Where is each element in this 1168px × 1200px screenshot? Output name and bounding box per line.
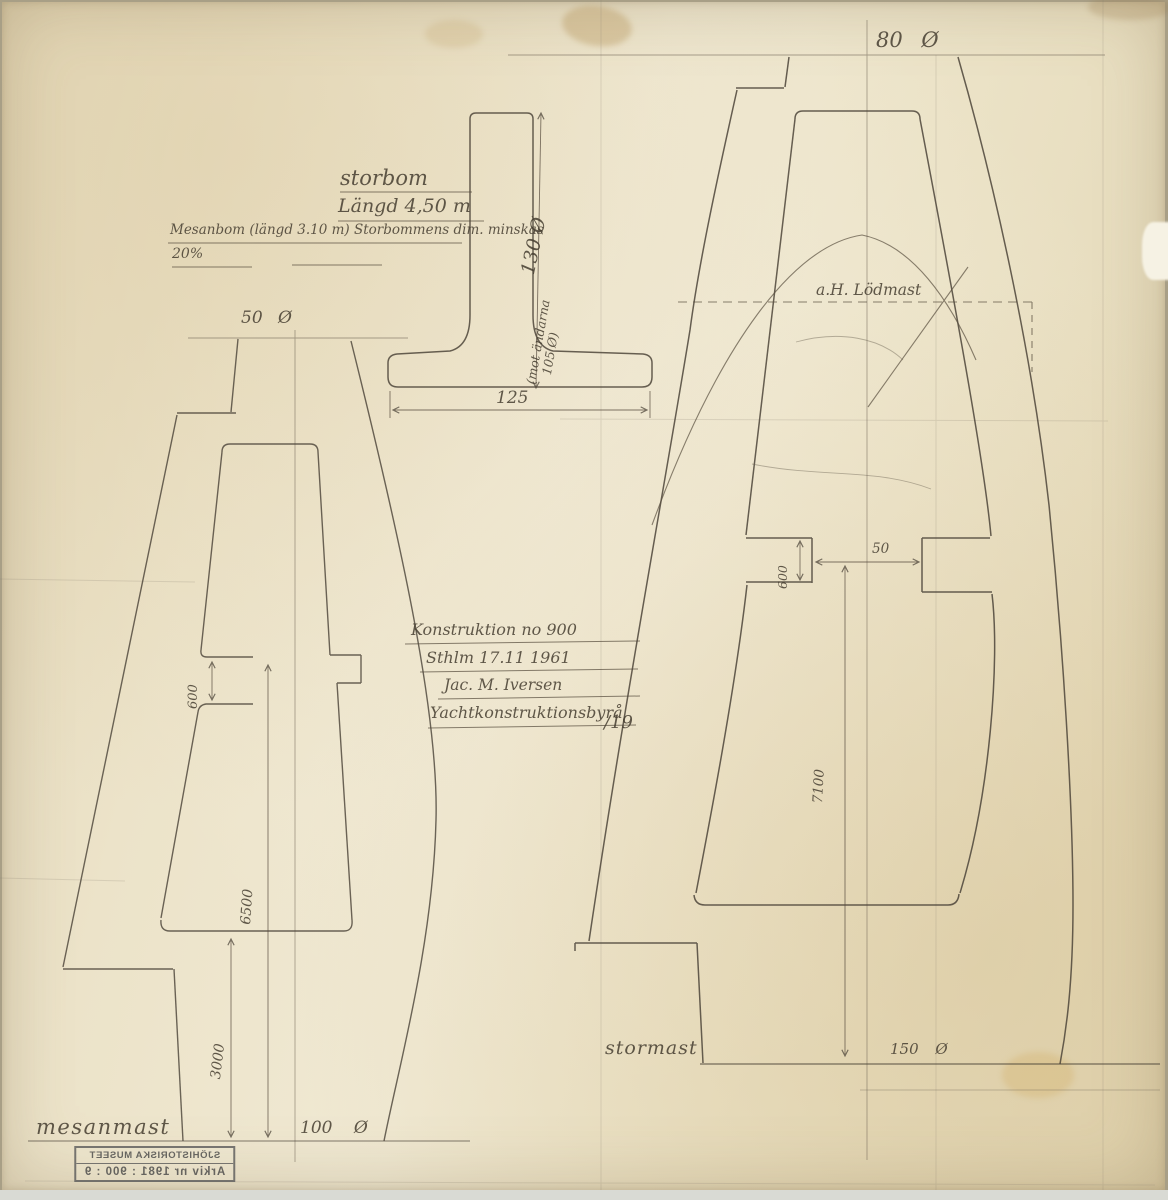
mesan-upper-length-dim: 6500 <box>238 888 256 925</box>
mesan-base-diameter: 100 Ø <box>300 1118 368 1138</box>
info-line1: Konstruktion no 900 <box>411 620 577 639</box>
stormast-label: stormast <box>605 1037 698 1059</box>
archive-stamp-box: SJÖHISTORISKA MUSEET Arkiv nr 1981 : 900… <box>74 1146 235 1182</box>
archive-stamp: SJÖHISTORISKA MUSEET Arkiv nr 1981 : 900… <box>74 1146 235 1182</box>
drawing-scan: storbom Längd 4,50 m Mesanbom (längd 3.1… <box>0 0 1168 1200</box>
stor-top-diameter: 80 Ø <box>876 28 939 52</box>
boom-width-dim: 125 <box>496 388 528 408</box>
mesanbom-note: Mesanbom (längd 3.10 m) Storbommens dim.… <box>170 222 544 238</box>
info-line4-suffix: /19 <box>604 712 633 733</box>
archive-stamp-museum: SJÖHISTORISKA MUSEET <box>76 1148 233 1164</box>
mesanbom-note-pct: 20% <box>172 246 203 262</box>
scanner-background-strip <box>0 1190 1168 1200</box>
paper-creases <box>0 0 1155 1200</box>
info-line3: Jac. M. Iversen <box>444 676 562 694</box>
storbom-title: storbom <box>340 166 428 190</box>
stormast-drawing <box>508 20 1160 1160</box>
mesanmast-label: mesanmast <box>36 1115 170 1139</box>
mesan-top-diameter: 50 Ø <box>241 308 292 328</box>
info-line4: Yachtkonstruktionsbyrå <box>430 703 623 722</box>
drawing-linework <box>0 0 1168 1200</box>
stor-length-dim: 7100 <box>810 769 828 804</box>
stor-gooseneck-offset-dim: 50 <box>872 541 889 557</box>
stor-base-diameter: 150 Ø <box>890 1040 948 1058</box>
info-line2: Sthlm 17.11 1961 <box>426 648 571 667</box>
stor-gooseneck-gap-dim: 600 <box>775 565 790 589</box>
mesan-gooseneck-gap-dim: 600 <box>186 684 201 709</box>
archive-stamp-number: Arkiv nr 1981 : 900 : 9 <box>76 1164 233 1180</box>
mesanmast-drawing <box>28 330 470 1162</box>
lodmast-note: a.H. Lödmast <box>816 281 921 299</box>
storbom-length: Längd 4,50 m <box>338 195 471 217</box>
